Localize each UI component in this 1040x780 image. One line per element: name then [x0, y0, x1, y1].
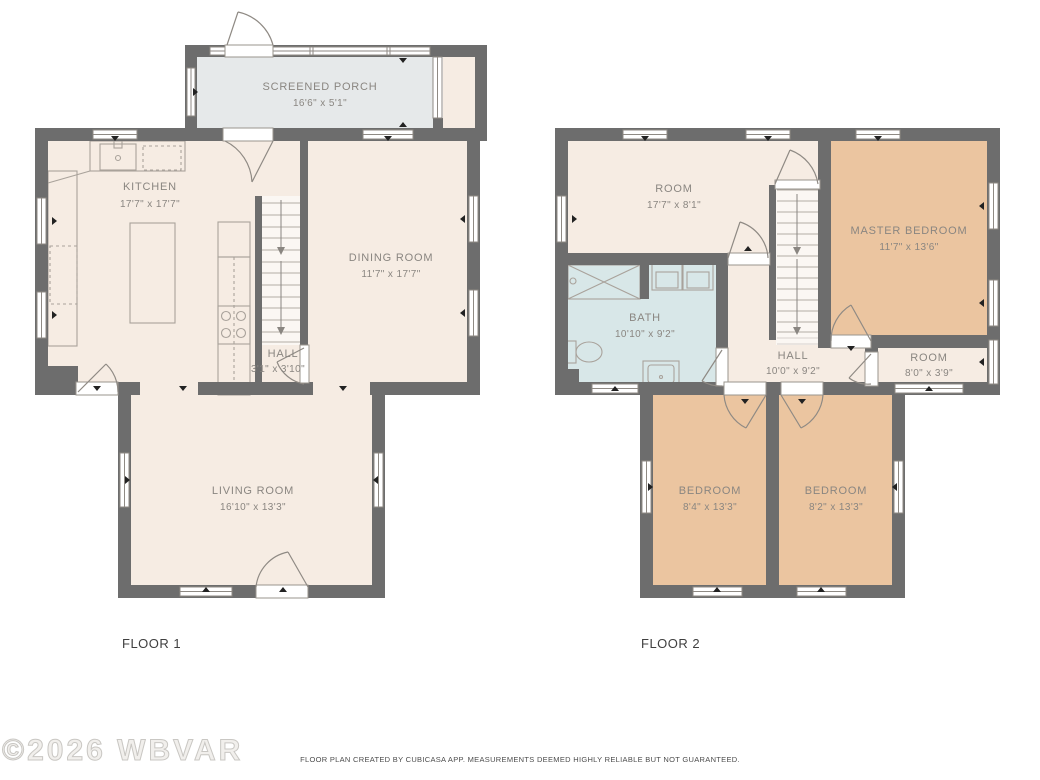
hall-f1-dims: 3'1" x 3'10" — [251, 364, 305, 375]
floor1-plan: SCREENED PORCH 16'6" x 5'1" KITCHEN 17'7… — [35, 12, 487, 651]
dining-room-label: DINING ROOM — [349, 252, 434, 264]
room-small-label: ROOM — [910, 352, 947, 364]
master-bedroom-label: MASTER BEDROOM — [851, 225, 968, 237]
hall-f1-label: HALL — [268, 348, 299, 360]
bedroom-left-label: BEDROOM — [679, 485, 741, 497]
floor2-title: FLOOR 2 — [641, 636, 700, 651]
kitchen-dims: 17'7" x 17'7" — [120, 199, 180, 210]
bedroom-right-label: BEDROOM — [805, 485, 867, 497]
room-top-dims: 17'7" x 8'1" — [647, 200, 701, 211]
dining-room-dims: 11'7" x 17'7" — [361, 269, 420, 280]
hall-f2-label: HALL — [778, 350, 809, 362]
floor2-plan: ROOM 17'7" x 8'1" MASTER BEDROOM 11'7" x… — [555, 128, 1000, 651]
floor1-title: FLOOR 1 — [122, 636, 181, 651]
watermark-text: ©2026 WBVAR — [2, 734, 243, 767]
living-room-label: LIVING ROOM — [212, 485, 294, 497]
bath-dims: 10'10" x 9'2" — [615, 329, 675, 340]
bath-label: BATH — [629, 312, 661, 324]
footer-disclaimer: FLOOR PLAN CREATED BY CUBICASA APP. MEAS… — [300, 755, 740, 764]
bedroom-right-dims: 8'2" x 13'3" — [809, 502, 863, 513]
floor-plan-svg: SCREENED PORCH 16'6" x 5'1" KITCHEN 17'7… — [0, 0, 1040, 780]
screened-porch-dims: 16'6" x 5'1" — [293, 98, 347, 109]
floor-plan-canvas: SCREENED PORCH 16'6" x 5'1" KITCHEN 17'7… — [0, 0, 1040, 780]
porch-exterior-door — [227, 12, 273, 45]
screened-porch-label: SCREENED PORCH — [262, 81, 377, 93]
master-bedroom-area — [831, 141, 987, 335]
hall-f2-dims: 10'0" x 9'2" — [766, 366, 820, 377]
living-room-dims: 16'10" x 13'3" — [220, 502, 286, 513]
room-small-dims: 8'0" x 3'9" — [905, 368, 953, 379]
bedroom-left-dims: 8'4" x 13'3" — [683, 502, 737, 513]
entry-nook-area — [443, 57, 475, 128]
master-bedroom-dims: 11'7" x 13'6" — [879, 242, 938, 253]
room-top-label: ROOM — [655, 183, 692, 195]
kitchen-label: KITCHEN — [123, 181, 177, 193]
